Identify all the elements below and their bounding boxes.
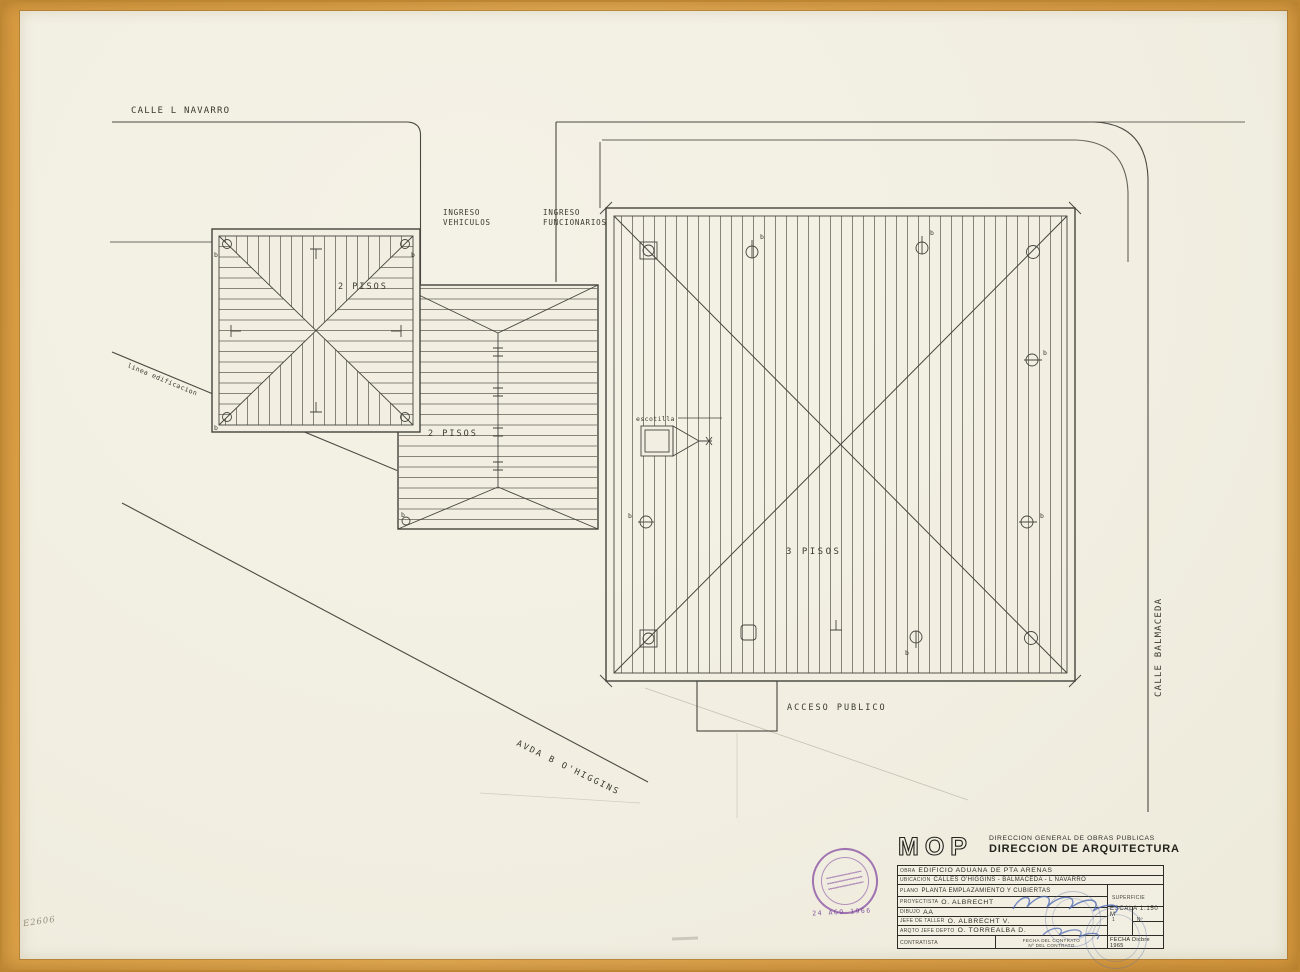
drawing-sheet: CALLE L NAVARRO CALLE BALMACEDA AVDA B O… [0, 0, 1300, 972]
tb-right-column: SUPERFICIE ESCALA 1:150 M 1 Nº FECHA Dic… [1108, 885, 1163, 949]
label-calle-navarro: CALLE L NAVARRO [131, 106, 230, 116]
tb-left-column: PLANO PLANTA EMPLAZAMIENTO Y CUBIERTAS P… [898, 885, 1108, 949]
obra-value: EDIFICIO ADUANA DE PTA ARENAS [918, 867, 1052, 874]
fixture-label: b [411, 251, 415, 259]
fixture-label: b [401, 511, 405, 519]
tb-row-arqto: ARQTO JEFE DEPTO O. TORREALBA D. [898, 926, 1107, 936]
agency-line1: DIRECCION GENERAL DE OBRAS PUBLICAS [989, 835, 1180, 842]
label-avda-ohiggins: AVDA B O'HIGGINS [515, 739, 622, 798]
fixture-label: b [760, 233, 764, 241]
sheet-cell-value: 1 [1110, 917, 1118, 923]
obra-label: OBRA [898, 868, 918, 874]
number-cell-value: Nº [1135, 917, 1146, 923]
ubicacion-label: UBICACION [898, 877, 933, 883]
label-building-b-floors: 2 PISOS [428, 429, 478, 439]
label-building-a-floors: 2 PISOS [338, 282, 388, 292]
tb-body: PLANO PLANTA EMPLAZAMIENTO Y CUBIERTAS P… [898, 885, 1163, 949]
number-cell-divider [1133, 921, 1163, 922]
mop-logo-text: MOP [898, 833, 973, 861]
tb-row-jefe-taller: JEFE DE TALLER O. ALBRECHT V. [898, 917, 1107, 926]
tb-row-obra: OBRA EDIFICIO ADUANA DE PTA ARENAS [898, 866, 1163, 876]
tb-row-contratista: CONTRATISTA FECHA DEL CONTRATO Nº DEL CO… [898, 936, 1107, 949]
title-block-table: OBRA EDIFICIO ADUANA DE PTA ARENAS UBICA… [897, 865, 1164, 949]
ubicacion-value: CALLES O'HIGGINS - BALMACEDA - L NAVARRO [933, 877, 1086, 883]
building-b: b 2 PISOS [397, 284, 599, 530]
title-block-header: MOP DIRECCION GENERAL DE OBRAS PUBLICAS … [897, 833, 1164, 863]
building-a: b b b 2 PISOS [212, 229, 420, 432]
fixture-label: b [930, 229, 934, 237]
fixture-label: b [1043, 349, 1047, 357]
contratista-label: CONTRATISTA [898, 940, 941, 946]
fixture-label: b [214, 251, 218, 259]
num-contrato-label: Nº DEL CONTRATO [1028, 943, 1074, 948]
plano-label: PLANO [898, 888, 921, 894]
entrance-labels: INGRESO VEHICULOS INGRESO FUNCIONARIOS [443, 208, 607, 227]
proyectista-value: O. ALBRECHT [941, 899, 994, 906]
plano-value: PLANTA EMPLAZAMIENTO Y CUBIERTAS [921, 888, 1050, 894]
agency-name: DIRECCION GENERAL DE OBRAS PUBLICAS DIRE… [989, 833, 1180, 855]
fixture-label: b [628, 512, 632, 520]
building-c: b b b b b b escotilla 3 PISOS ACCESO PUB… [600, 202, 1081, 731]
dibujo-value: AA [923, 909, 933, 916]
mop-logo: MOP [897, 833, 989, 861]
contrato-cell: FECHA DEL CONTRATO Nº DEL CONTRATO [995, 936, 1107, 949]
escala-box: SUPERFICIE ESCALA 1:150 M [1108, 885, 1163, 907]
sheet-number-box: 1 Nº [1108, 907, 1163, 936]
acceso-canopy [697, 681, 777, 731]
jefe-taller-label: JEFE DE TALLER [898, 918, 948, 924]
arqto-value: O. TORREALBA D. [958, 927, 1027, 934]
tb-row-proyectista: PROYECTISTA O. ALBRECHT [898, 897, 1107, 908]
tb-row-plano: PLANO PLANTA EMPLAZAMIENTO Y CUBIERTAS [898, 885, 1107, 897]
dibujo-label: DIBUJO [898, 909, 923, 915]
site-plan: CALLE L NAVARRO CALLE BALMACEDA AVDA B O… [0, 0, 1300, 972]
fixture-label: b [1040, 512, 1044, 520]
arqto-label: ARQTO JEFE DEPTO [898, 928, 958, 934]
label-escotilla: escotilla [636, 415, 675, 423]
label-ingreso-vehiculos: INGRESO [443, 208, 480, 217]
fecha-box: FECHA Dicbre 1965 [1108, 936, 1163, 949]
proyectista-label: PROYECTISTA [898, 899, 941, 905]
label-calle-balmaceda: CALLE BALMACEDA [1154, 598, 1164, 697]
label-linea-edificacion: linea edificacion [126, 361, 198, 397]
label-ingreso-vehiculos: VEHICULOS [443, 218, 491, 227]
superficie-label: SUPERFICIE [1110, 895, 1148, 901]
fixture-label: b [214, 424, 218, 432]
tb-row-dibujo: DIBUJO AA [898, 908, 1107, 917]
label-ingreso-funcionarios: INGRESO [543, 208, 580, 217]
label-building-c-floors: 3 PISOS [786, 547, 841, 557]
number-cell: Nº [1133, 907, 1163, 935]
label-acceso-publico: ACCESO PUBLICO [787, 703, 887, 713]
title-block: MOP DIRECCION GENERAL DE OBRAS PUBLICAS … [897, 833, 1164, 953]
sheet-cell: 1 [1108, 907, 1133, 935]
agency-line2: DIRECCION DE ARQUITECTURA [989, 843, 1180, 855]
label-ingreso-funcionarios: FUNCIONARIOS [543, 218, 607, 227]
fixture-label: b [905, 649, 909, 657]
tb-row-ubicacion: UBICACION CALLES O'HIGGINS - BALMACEDA -… [898, 876, 1163, 885]
jefe-taller-value: O. ALBRECHT V. [948, 918, 1010, 925]
